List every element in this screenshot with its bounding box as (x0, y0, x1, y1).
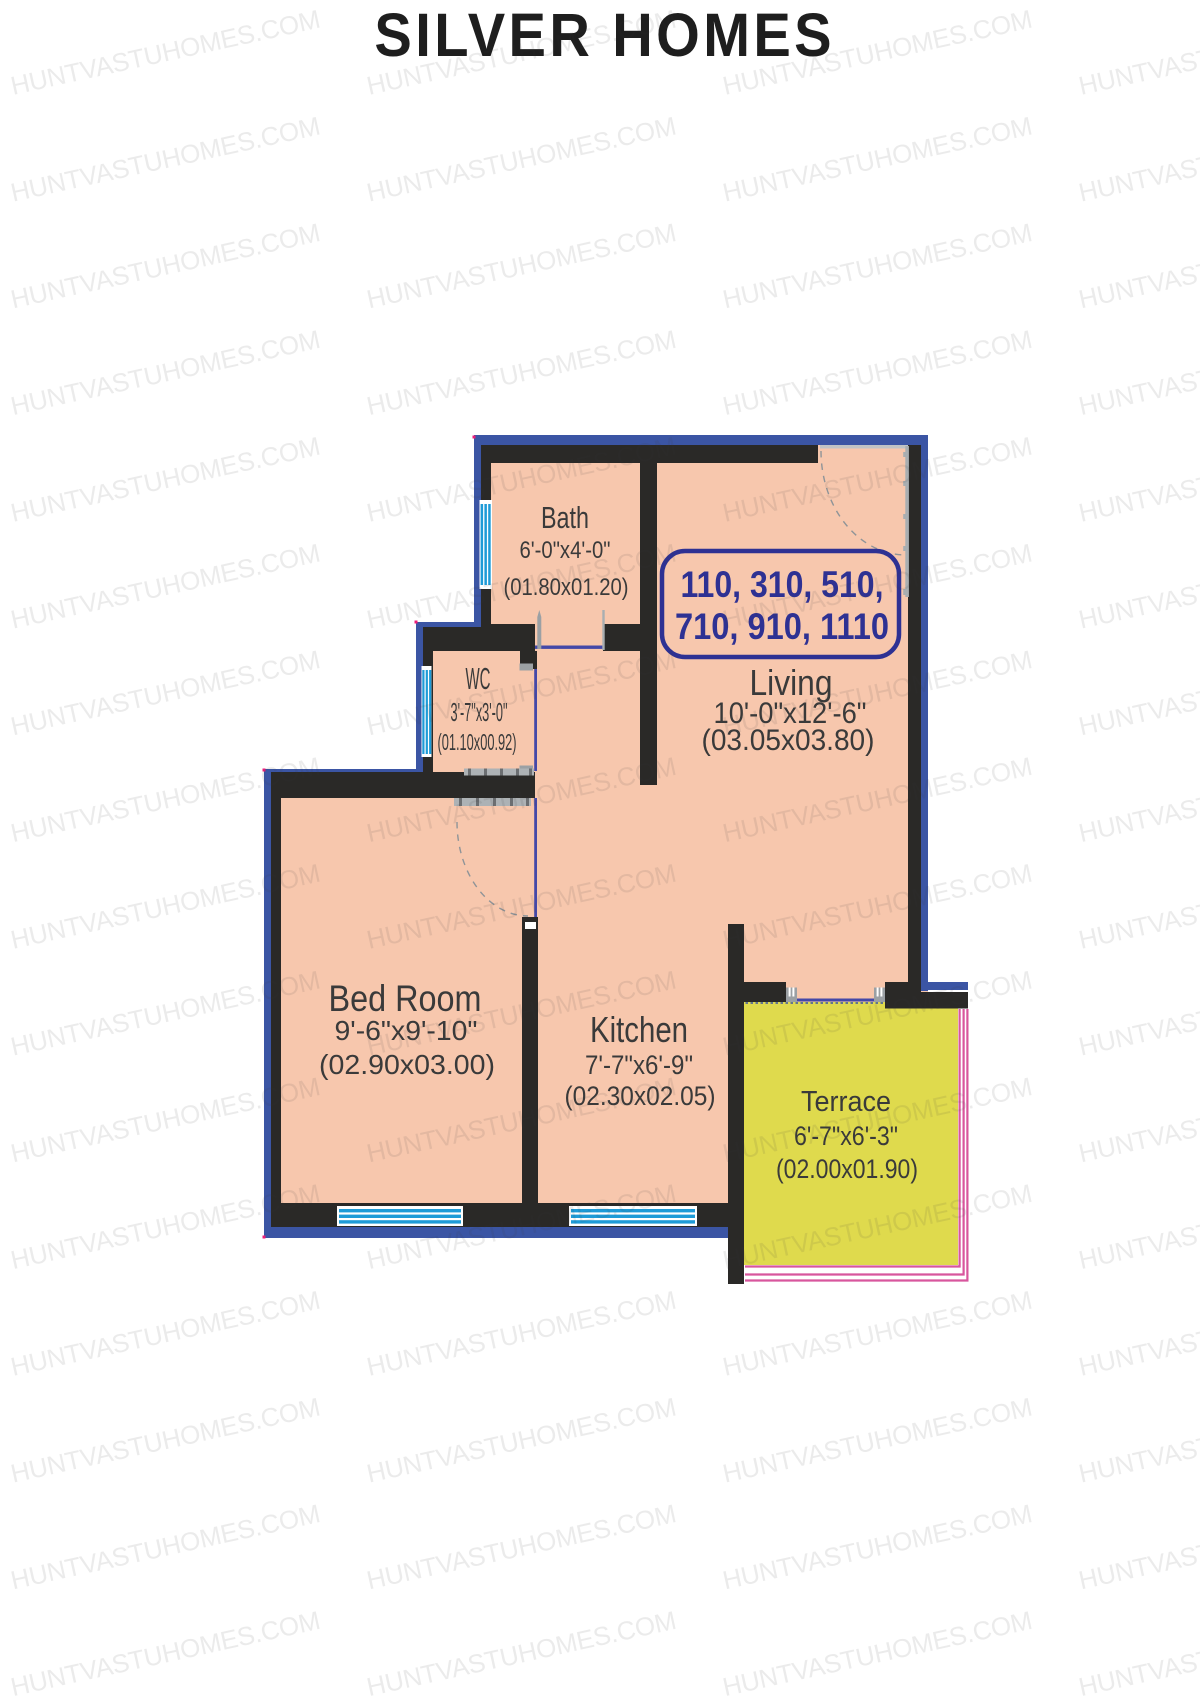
svg-text:(02.90x03.00): (02.90x03.00) (319, 1049, 495, 1080)
svg-text:(01.10x00.92): (01.10x00.92) (438, 729, 517, 755)
svg-text:(02.00x01.90): (02.00x01.90) (776, 1154, 918, 1184)
svg-text:Bath: Bath (541, 500, 589, 535)
svg-text:7'-7"x6'-9": 7'-7"x6'-9" (585, 1050, 693, 1080)
svg-text:Kitchen: Kitchen (590, 1009, 688, 1050)
